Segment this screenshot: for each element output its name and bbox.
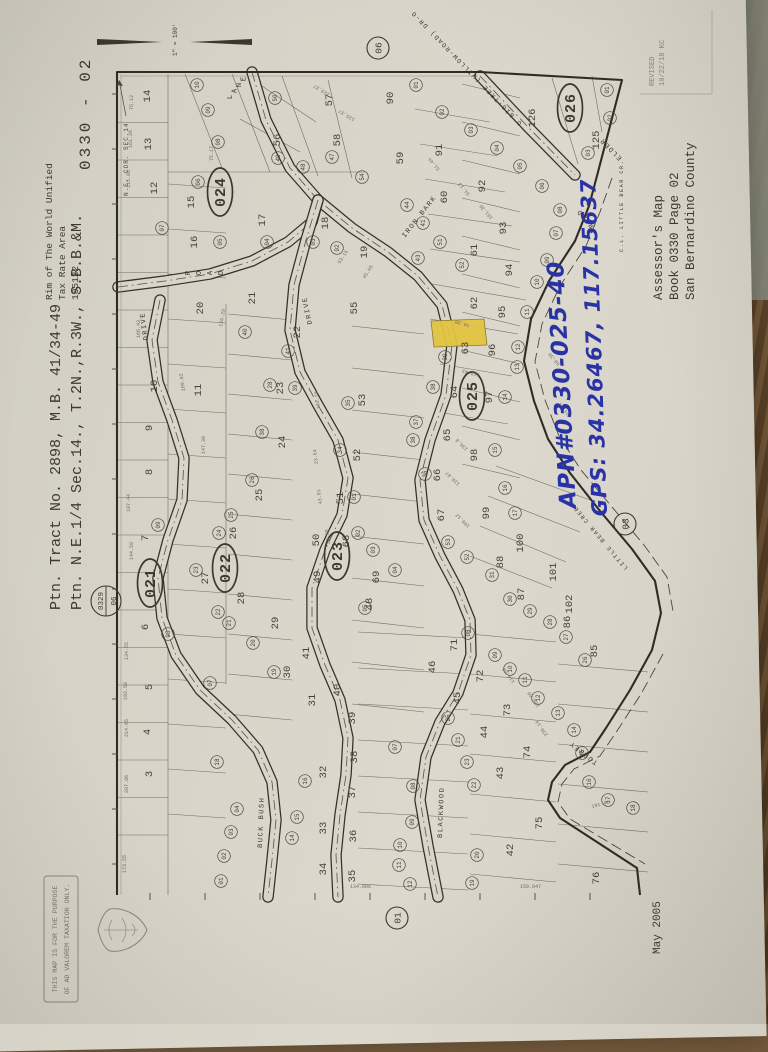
parcel-number: 33 — [318, 822, 330, 835]
lot-number: 03 — [228, 828, 235, 836]
lot-number: 03 — [585, 149, 592, 157]
dimension-label: 91.13 — [457, 181, 471, 196]
block-number: 022 — [218, 553, 235, 583]
parcel-number: 24 — [277, 436, 289, 449]
dimension-label: 173.55 — [122, 855, 128, 873]
lot-number: 05 — [217, 238, 224, 246]
lot-number: 02 — [439, 108, 446, 116]
parcel-line — [462, 426, 520, 440]
lot-number: 08 — [465, 629, 472, 637]
lot-number: 02 — [607, 114, 614, 122]
tax-area-line1: Rim of The World Unified — [44, 163, 55, 300]
lot-number: 16 — [586, 778, 593, 786]
parcel-number: 73 — [502, 704, 514, 717]
parcel-number: 20 — [195, 302, 207, 315]
parcel-number: 7 — [140, 535, 152, 541]
lot-number: 16 — [302, 777, 309, 785]
lot-number: 11 — [396, 861, 403, 869]
lot-number: 12 — [407, 880, 414, 888]
parcel-line — [558, 784, 648, 792]
lot-number: 13 — [514, 363, 521, 371]
parcel-number: 72 — [475, 670, 487, 683]
parcel-number: 31 — [307, 694, 319, 707]
parcel-line — [462, 160, 520, 174]
parcel-number: 91 — [434, 144, 446, 157]
lot-number: 44 — [404, 201, 411, 209]
parcel-line — [185, 74, 222, 168]
parcel-line — [358, 812, 468, 818]
handwritten-gps: GPS: 34.26467, 117.15637 — [576, 178, 612, 517]
lot-number: 02 — [334, 244, 341, 252]
lot-number: 50 — [272, 94, 279, 102]
assessor-map-drawing: 3456789101213141115162017181921222324252… — [0, 0, 768, 1024]
tax-area-line2: Tax Rate Area — [57, 226, 68, 300]
parcel-line — [470, 634, 556, 642]
corner-label: N.E. COR. SEC.14 — [123, 122, 130, 196]
revised-label: REVISED — [649, 57, 657, 86]
dimension-label: 75.12 — [129, 95, 135, 110]
lot-number: 14 — [571, 726, 578, 734]
parcel-line — [168, 634, 226, 638]
lot-number: 21 — [455, 736, 462, 744]
parcel-number: 12 — [149, 182, 161, 195]
parcel-number: 71 — [449, 639, 461, 652]
road-name-label: BLACKWOOD — [437, 787, 447, 839]
lot-number: 19 — [271, 668, 278, 676]
parcel-number: 27 — [200, 572, 212, 585]
parcel-line — [470, 754, 556, 762]
parcel-number: 60 — [439, 191, 451, 204]
parcel-number: 102 — [564, 595, 576, 614]
parcel-line — [358, 632, 468, 638]
dimension-label: 123.37 — [313, 83, 331, 98]
dimension-label: 230.14 — [534, 719, 549, 737]
lot-number: 11 — [522, 676, 529, 684]
lot-number: 09 — [155, 521, 162, 529]
lot-number: 26 — [249, 476, 256, 484]
dimension-label: 109.02 — [179, 373, 187, 392]
parcel-number: 95 — [497, 306, 509, 319]
dimension-label: 147.38 — [201, 436, 207, 454]
lot-number: 08 — [557, 206, 564, 214]
parcel-number: 49 — [312, 571, 324, 584]
dimension-label: 75.17 — [209, 146, 215, 161]
lot-number: 03 — [468, 126, 475, 134]
lot-number: 48 — [300, 163, 307, 171]
parcel-line — [470, 874, 556, 882]
parcel-number: 38 — [349, 751, 361, 764]
parcel-number: 94 — [504, 264, 516, 277]
parcel-line — [228, 634, 292, 640]
dimension-label: 207.06 — [124, 775, 130, 793]
assessor-footer-line2: Book 0330 Page 02 — [668, 172, 682, 300]
road-name-label: IRON BARK — [401, 194, 439, 239]
parcel-line — [228, 314, 292, 320]
parcel-number: 26 — [228, 527, 240, 540]
lot-number: 14 — [289, 834, 296, 842]
dimension-label: 45.05 — [362, 264, 375, 280]
parcel-number: 93 — [498, 222, 510, 235]
lot-number: 02 — [221, 852, 228, 860]
lot-number: 53 — [445, 538, 452, 546]
parcel-number: 19 — [359, 246, 371, 259]
parcel-line — [352, 326, 424, 334]
parcel-number: 53 — [357, 394, 369, 407]
parcel-number: 41 — [301, 647, 313, 660]
dimension-label: 214.65 — [124, 719, 130, 737]
lot-number: 26 — [582, 656, 589, 664]
parcel-number: 87 — [516, 588, 528, 601]
lot-number: 25 — [445, 714, 452, 722]
lot-number: 43 — [415, 254, 422, 262]
parcel-number: 86 — [562, 616, 574, 629]
lot-number: 09 — [409, 818, 416, 826]
parcel-number: 23 — [275, 382, 287, 395]
parcel-number: 32 — [318, 766, 330, 779]
road-name-letter: N — [236, 83, 244, 87]
parcel-line — [352, 704, 424, 712]
parcel-number: 4 — [142, 729, 154, 735]
parcel-line — [168, 229, 226, 233]
dimension-label: 144.59 — [129, 542, 135, 560]
lot-number: 13 — [555, 709, 562, 717]
parcel-number: 74 — [522, 746, 534, 759]
lot-number: 08 — [410, 782, 417, 790]
dimension-label: 51.44 — [427, 156, 441, 171]
parcel-number: 52 — [352, 449, 364, 462]
parcel-line — [168, 769, 226, 773]
parcel-number: 100 — [515, 534, 527, 553]
lot-number: 38 — [430, 383, 437, 391]
page-ring-number: 01 — [393, 912, 404, 924]
parcel-number: 99 — [481, 507, 493, 520]
lot-number: 07 — [392, 743, 399, 751]
lot-number: 07 — [207, 679, 214, 687]
parcel-number: 22 — [292, 326, 304, 339]
parcel-line — [358, 776, 468, 782]
parcel-number: 76 — [591, 872, 603, 885]
parcel-line — [168, 724, 226, 728]
dimension-label: 110.87 — [444, 470, 461, 487]
parcel-line — [352, 662, 424, 670]
lot-number: 52 — [464, 553, 471, 561]
parcel-number: 92 — [477, 180, 489, 193]
parcel-number: 8 — [144, 469, 156, 475]
parcel-number: 6 — [140, 624, 152, 630]
lot-number: 10 — [534, 278, 541, 286]
tract-title-line1: Ptn. Tract No. 2898, M.B. 41/34-49 — [48, 304, 65, 610]
parcel-number: 44 — [479, 726, 491, 739]
lot-number: 10 — [194, 81, 201, 89]
lot-number: 01 — [413, 81, 420, 89]
lot-number: 30 — [507, 595, 514, 603]
lot-number: 25 — [228, 511, 235, 519]
parcel-number: 28 — [236, 592, 248, 605]
parcel-number: 3 — [144, 771, 156, 777]
parcel-number: 18 — [320, 217, 332, 230]
lot-number: 15 — [492, 446, 499, 454]
parcel-number: 21 — [247, 292, 259, 305]
dimension-label: 191.41 — [591, 799, 610, 809]
block-number: 021 — [143, 568, 160, 598]
road-name-letter: A — [232, 88, 240, 93]
dimension-label: 109.12 — [454, 512, 471, 529]
block-number: 025 — [465, 381, 482, 411]
lot-number: 47 — [329, 153, 336, 161]
lot-number: 07 — [553, 229, 560, 237]
lot-number: 15 — [294, 813, 301, 821]
parcel-number: 126 — [527, 109, 539, 128]
road-name-letter: L — [227, 95, 235, 99]
lot-number: 10 — [397, 841, 404, 849]
parcel-number: 67 — [436, 509, 448, 522]
dimension-label: 193.58 — [123, 682, 129, 700]
parcel-number: 85 — [589, 645, 601, 658]
lot-number: 12 — [515, 343, 522, 351]
lot-number: 21 — [226, 619, 233, 627]
dimension-label: 43.01 — [316, 489, 324, 505]
parcel-line — [462, 198, 520, 212]
parcel-number: 17 — [257, 214, 269, 227]
lot-number: 28 — [267, 381, 274, 389]
revised-date: 10/22/18 KC — [659, 40, 667, 86]
lot-number: 38 — [259, 428, 266, 436]
lot-number: 22 — [215, 608, 222, 616]
parcel-number: 13 — [143, 138, 155, 151]
split-ring-bottom: 06 — [111, 596, 119, 606]
road-name-label: C.L. LITTLE BEAR CR. — [619, 160, 625, 252]
parcel-line — [415, 109, 490, 122]
parcel-number: 98 — [469, 449, 481, 462]
lot-number: 01 — [351, 493, 358, 501]
road-name-label: BUCK BUSH — [257, 797, 267, 849]
lot-number: 37 — [413, 418, 420, 426]
parcel-line — [168, 454, 226, 458]
lot-number: 24 — [216, 529, 223, 537]
parcel-number: 15 — [186, 196, 198, 209]
parcel-number: 42 — [505, 844, 517, 857]
parcel-number: 36 — [348, 830, 360, 843]
lot-number: 06 — [539, 182, 546, 190]
county-seal-detail — [104, 918, 138, 942]
parcel-line — [352, 578, 424, 586]
lot-number: 29 — [527, 607, 534, 615]
parcel-number: 97 — [484, 391, 496, 404]
parcel-line — [352, 620, 424, 628]
stamp-box — [44, 876, 78, 1002]
lot-number: 23 — [193, 566, 200, 574]
lot-number: 04 — [392, 566, 399, 574]
parcel-number: 51 — [335, 492, 347, 505]
lot-number: 20 — [474, 851, 481, 859]
parcel-number: 34 — [318, 863, 330, 876]
lot-number: 09 — [492, 651, 499, 659]
parcel-number: 10 — [149, 380, 161, 393]
parcel-number: 37 — [347, 786, 359, 799]
parcel-line — [558, 704, 648, 712]
dimension-label: 136.8 — [455, 437, 470, 452]
scale-bar-needle — [190, 39, 252, 45]
parcel-number: 43 — [495, 767, 507, 780]
parcel-line — [352, 494, 424, 502]
parcel-line — [228, 474, 292, 480]
lot-number: 49 — [275, 154, 282, 162]
parcel-number: 9 — [144, 425, 156, 431]
parcel-number: 25 — [254, 489, 266, 502]
parcel-line — [168, 364, 226, 368]
lot-number: 39 — [292, 384, 299, 392]
parcel-number: 65 — [442, 429, 454, 442]
road-name-letter: O — [196, 271, 204, 275]
parcel-number: 40 — [332, 684, 344, 697]
assessor-footer-line3: San Bernardino County — [684, 142, 698, 300]
parcel-number: 59 — [395, 152, 407, 165]
lot-number: 23 — [464, 758, 471, 766]
date-note: May 2005 — [652, 901, 664, 954]
parcel-number: 5 — [144, 684, 156, 690]
lot-number: 03 — [310, 238, 317, 246]
lot-number: 11 — [524, 308, 531, 316]
parcel-line — [168, 319, 226, 323]
lot-number: 28 — [547, 618, 554, 626]
block-number: 026 — [563, 93, 580, 123]
lot-number: 38 — [410, 436, 417, 444]
parcel-number: 90 — [385, 92, 397, 105]
road-name-label: O BIG-TREE (WILLOW-ROAD) DR-O — [410, 9, 524, 127]
parcel-number: 75 — [534, 817, 546, 830]
lot-number: 02 — [355, 529, 362, 537]
parcel-number: 61 — [469, 244, 481, 257]
parcel-number: 58 — [332, 134, 344, 147]
road-name-letter: R — [185, 270, 193, 275]
parcel-number: 11 — [193, 384, 205, 397]
lot-number: 41 — [285, 347, 292, 355]
lot-number: 40 — [242, 328, 249, 336]
parcel-line — [592, 76, 602, 132]
lot-number: 08 — [215, 138, 222, 146]
lot-number: 39 — [442, 353, 449, 361]
dimension-label: 134.55 — [124, 642, 130, 660]
lot-number: 05 — [517, 162, 524, 170]
parcel-number: 30 — [282, 666, 294, 679]
parcel-line — [470, 794, 556, 802]
dimension-label: 125.37 — [338, 108, 356, 123]
block-number: 024 — [213, 177, 230, 207]
lot-number: 19 — [469, 879, 476, 887]
parcel-line — [470, 834, 556, 842]
dimension-label: 159.047 — [520, 884, 541, 890]
parcel-line — [228, 354, 292, 360]
parcel-number: 66 — [432, 469, 444, 482]
parcel-number: 45 — [452, 692, 464, 705]
parcel-number: 63 — [460, 342, 472, 355]
handwritten-apn: APN#0330-025-40 — [543, 260, 582, 511]
lot-number: 17 — [512, 509, 519, 517]
lot-number: 18 — [630, 804, 637, 812]
parcel-number: 35 — [347, 870, 359, 883]
parcel-number: 62 — [469, 297, 481, 310]
dimension-label: 107.44 — [126, 494, 132, 512]
dimension-label: 23.64 — [312, 449, 320, 465]
stamp-line1: THIS MAP IS FOR THE PURPOSE — [52, 886, 59, 993]
lot-number: 14 — [502, 393, 509, 401]
parcel-line — [168, 814, 226, 818]
lot-number: 09 — [205, 106, 212, 114]
tax-area-line3: 105122 — [70, 265, 81, 300]
parcel-number: 69 — [371, 571, 383, 584]
lot-number: 35 — [345, 399, 352, 407]
photo-of-assessor-map: { "photo": { "desk_color": "#6b4e2f", "s… — [0, 0, 768, 1024]
parcel-line — [352, 410, 424, 418]
parcel-line — [352, 368, 424, 376]
assessor-footer-line1: Assessor's Map — [652, 195, 666, 300]
road-edges-drive-buckbush — [152, 300, 276, 897]
page-ring-number: 03 — [621, 518, 632, 530]
parcel-line — [470, 556, 552, 588]
lot-number: 22 — [471, 781, 478, 789]
parcel-line — [168, 544, 226, 548]
parcel-number: 39 — [347, 712, 359, 725]
stamp-line2: OF AD VALOREM TAXATION ONLY. — [64, 884, 71, 995]
lot-number: 52 — [459, 261, 466, 269]
road-name-letter: E — [241, 77, 249, 81]
page-ring-number: 06 — [374, 42, 385, 54]
parcel-line — [168, 589, 226, 593]
lot-number: 05 — [362, 604, 369, 612]
parcel-number: 14 — [142, 90, 154, 103]
parcel-number: 29 — [270, 617, 282, 630]
dimension-label: 134.006 — [350, 884, 371, 890]
sheet-number: 0330 - 02 — [77, 57, 95, 170]
road-name-label: DRIVE — [301, 295, 315, 325]
parcel-number: 88 — [495, 556, 507, 569]
lot-number: 54 — [359, 173, 366, 181]
block-number: 023 — [330, 541, 347, 571]
parcel-line — [228, 554, 292, 560]
lot-number: 06 — [195, 178, 202, 186]
lot-number: 18 — [214, 758, 221, 766]
parcel-number: 16 — [189, 236, 201, 249]
lot-number: 20 — [250, 639, 257, 647]
lot-number: 07 — [159, 224, 166, 232]
parcel-line — [168, 409, 226, 413]
dimension-label: 102.79 — [314, 391, 322, 410]
lot-number: 31 — [489, 571, 496, 579]
parcel-line — [462, 464, 520, 478]
lot-number: 03 — [370, 546, 377, 554]
road-surface-drive-buckbush — [152, 300, 276, 897]
scale-bar-needle — [97, 39, 162, 45]
parcel-line — [438, 412, 508, 424]
torrey-road-dash — [558, 654, 663, 864]
split-ring-top: 0329 — [98, 592, 106, 610]
lot-number: 08 — [165, 630, 172, 638]
lot-number: 27 — [563, 633, 570, 641]
parcel-line — [420, 144, 498, 156]
lot-number: 04 — [264, 238, 271, 246]
lot-number: 51 — [437, 238, 444, 246]
parcel-number: 56 — [272, 134, 284, 147]
parcel-number: 50 — [311, 534, 323, 547]
parcel-number: 96 — [487, 344, 499, 357]
parcel-line — [358, 848, 468, 854]
parcel-line — [558, 664, 648, 672]
lot-number: 04 — [494, 144, 501, 152]
parcel-number: 55 — [349, 302, 361, 315]
map-rotated-layer: 3456789101213141115162017181921222324252… — [44, 9, 712, 1002]
lot-number: 16 — [502, 484, 509, 492]
road-name-letter: D — [218, 271, 226, 275]
